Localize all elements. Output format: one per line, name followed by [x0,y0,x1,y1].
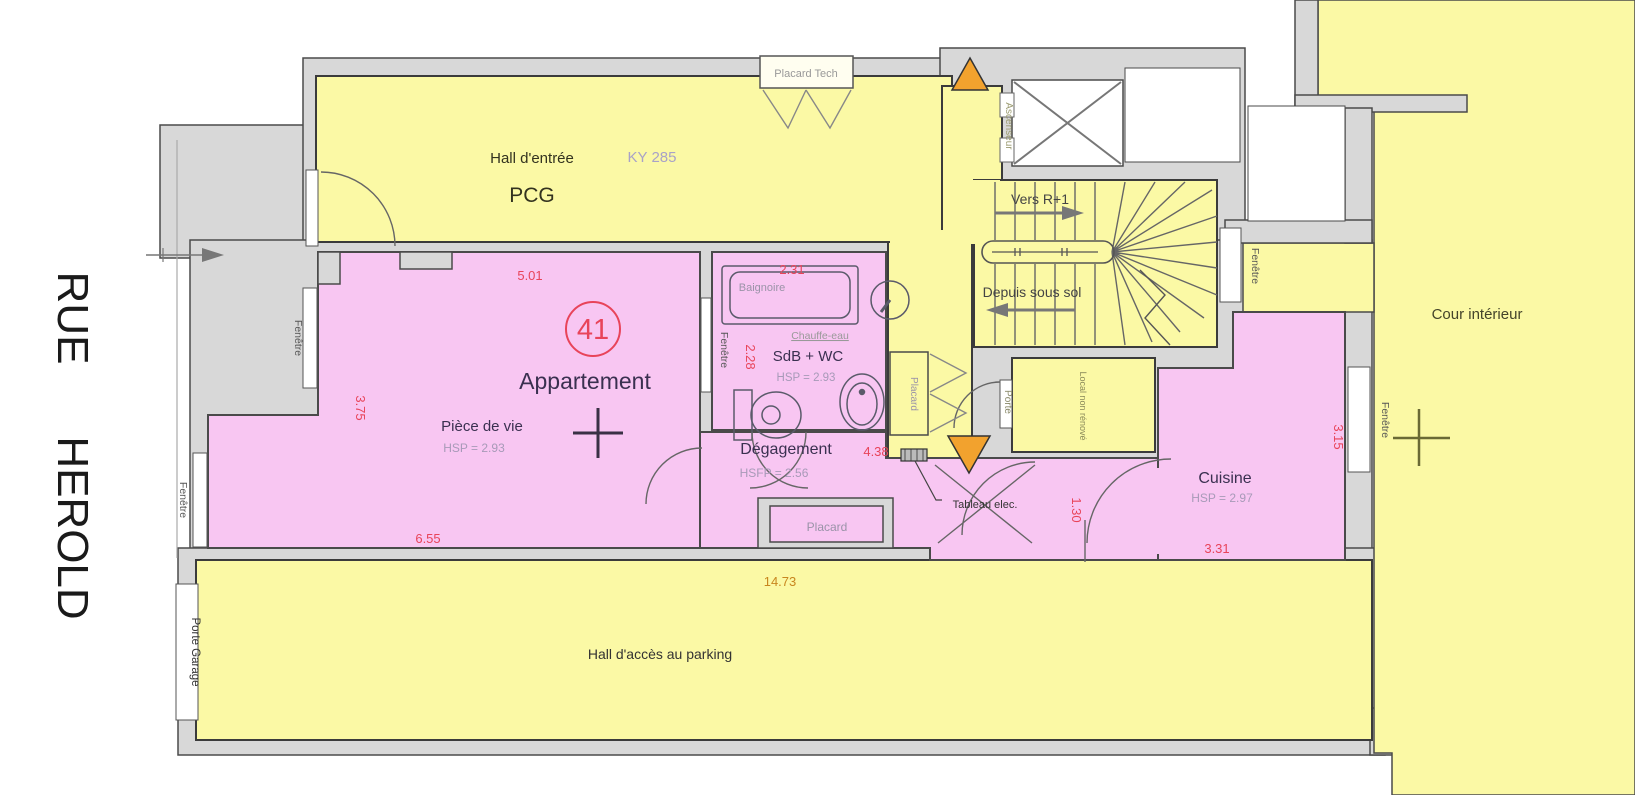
placard-tech-label: Placard Tech [774,68,837,80]
tableau-elec-label: Tableau elec. [953,499,1018,511]
dim-couloir: 1.30 [1069,497,1084,522]
passage-join [944,180,1000,244]
fenetre-sdb-label: Fenêtre [718,332,730,368]
fenetre-piece-label: Fenêtre [177,482,189,518]
porte-garage-label: Porte Garage [189,617,201,686]
dim-cuisine-bottom: 3.31 [1204,541,1229,556]
appartement-label: Appartement [519,368,651,394]
piece-de-vie-label: Pièce de vie [441,418,523,435]
notch-white-right [1248,106,1345,221]
window-piece-left [193,453,207,547]
street-rue-label: RUE [48,272,97,365]
vers-r1-label: Vers R+1 [1011,191,1069,207]
window-sdb-partition [701,298,711,392]
piece-hsp-label: HSP = 2.93 [443,441,505,455]
window-stairs [1220,228,1241,302]
hall-parking-label: Hall d'accès au parking [588,646,732,662]
sdb-hsp-label: HSP = 2.93 [777,372,836,384]
dim-total-bottom: 14.73 [764,574,797,589]
pillar-1 [318,252,340,284]
street-labels: RUE HEROLD [48,272,97,620]
porte-label: Porte [1002,390,1013,414]
dim-sdb-top: 2.31 [779,262,804,277]
degagement-hsfp-label: HSFP = 2.56 [740,466,809,480]
pillar-2 [400,252,452,269]
corridor-join [890,230,950,246]
depuis-sous-sol-label: Depuis sous sol [983,284,1082,300]
ascenseur-label: Ascenseur [1003,102,1014,150]
dim-piece-top: 5.01 [517,268,542,283]
cuisine-hsp-label: HSP = 2.97 [1191,491,1253,505]
pcg-label: PCG [509,184,555,207]
wall-notch-bottom [1225,220,1372,243]
cuisine-label: Cuisine [1198,470,1251,487]
window-entry [303,288,317,388]
baignoire-label: Baignoire [739,282,785,294]
window-cuisine [1348,367,1370,472]
floor-plan-page: RUE HEROLD Hall d'entrée KY 285 PCG Plac… [0,0,1635,795]
apartment-number: 41 [577,314,609,346]
floor-plan: RUE HEROLD Hall d'entrée KY 285 PCG Plac… [0,0,1635,795]
dim-sdb-left: 2.28 [743,344,758,369]
dim-piece-left: 3.75 [353,395,368,420]
degagement-label: Dégagement [740,441,832,458]
sdb-label: SdB + WC [773,348,844,365]
ky-ref-label: KY 285 [628,149,677,166]
hall-entree-label: Hall d'entrée [490,150,574,167]
washbasin-tap [860,390,865,395]
local-label: Local non rénové [1078,371,1088,440]
cuisine-join [1150,468,1168,554]
placard-corridor-label: Placard [908,377,919,411]
street-herold-label: HEROLD [48,436,97,619]
dim-piece-bottom: 6.55 [415,531,440,546]
placard-bas-label: Placard [807,520,848,534]
dim-cuisine-right: 3.15 [1331,424,1346,449]
chauffe-eau-label: Chauffe-eau [791,330,849,342]
fenetre-stairs-label: Fenêtre [1249,248,1261,284]
dim-degagement: 4.38 [863,444,888,459]
cour-label: Cour intérieur [1432,306,1523,323]
cour-mid-area [1243,243,1374,312]
fenetre-cuisine-label: Fenêtre [1379,402,1391,438]
notch-white-left [1125,68,1240,162]
door-gap-hall-entry [306,170,318,246]
elevator [1000,80,1123,166]
fenetre-entry-label: Fenêtre [292,320,304,356]
